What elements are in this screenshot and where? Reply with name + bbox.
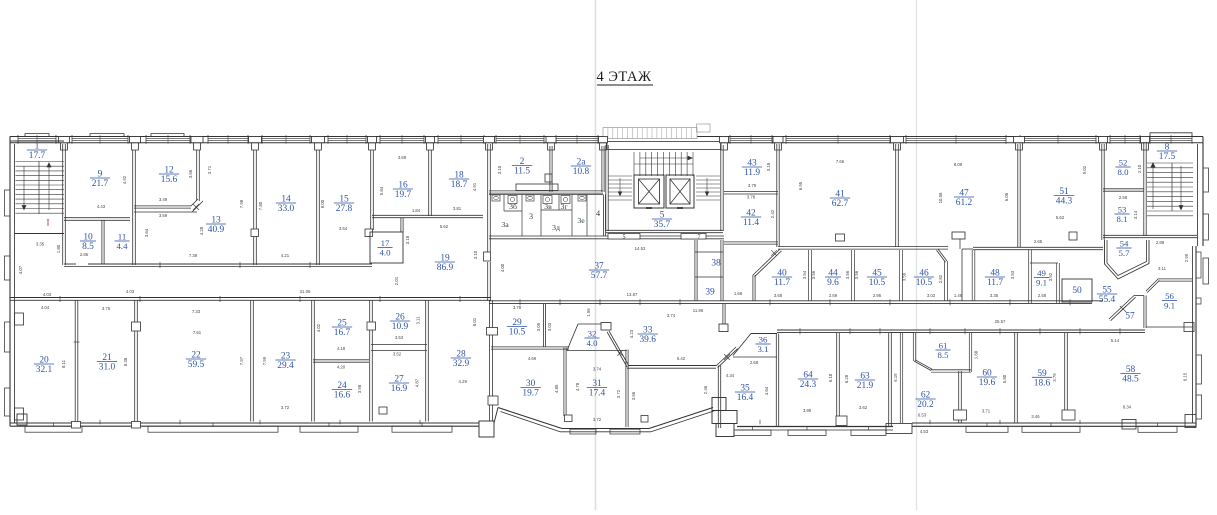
svg-text:5.84: 5.84 (379, 186, 384, 195)
svg-text:3.03: 3.03 (547, 322, 552, 331)
svg-text:55.4: 55.4 (1099, 295, 1116, 305)
svg-text:11.5: 11.5 (514, 167, 530, 177)
svg-text:3.98: 3.98 (357, 384, 362, 393)
svg-text:3.11: 3.11 (416, 316, 421, 325)
svg-text:5.80: 5.80 (1002, 374, 1007, 383)
svg-text:3.46: 3.46 (1031, 414, 1040, 419)
svg-text:59.5: 59.5 (188, 360, 205, 370)
svg-text:3.72: 3.72 (593, 417, 602, 422)
svg-text:7.97: 7.97 (239, 356, 244, 365)
svg-text:38: 38 (711, 259, 721, 269)
svg-text:3.62: 3.62 (859, 405, 868, 410)
svg-text:9.1: 9.1 (1036, 278, 1047, 288)
svg-text:6.18: 6.18 (828, 373, 833, 382)
svg-text:3.54: 3.54 (339, 226, 348, 231)
svg-text:4.28: 4.28 (199, 226, 204, 235)
svg-text:3д: 3д (552, 223, 560, 232)
svg-text:15.6: 15.6 (161, 175, 178, 185)
svg-text:3.56: 3.56 (811, 270, 816, 279)
svg-text:3.78: 3.78 (747, 195, 756, 200)
svg-text:39.6: 39.6 (639, 335, 656, 345)
svg-text:2.99: 2.99 (1184, 253, 1189, 262)
svg-text:2.65: 2.65 (1034, 239, 1043, 244)
svg-text:4: 4 (596, 209, 600, 218)
svg-text:6.06: 6.06 (1004, 192, 1009, 201)
svg-text:31.06: 31.06 (300, 289, 311, 294)
svg-text:44.3: 44.3 (1056, 197, 1073, 207)
svg-text:4.07: 4.07 (18, 265, 23, 274)
svg-text:1.68: 1.68 (734, 291, 743, 296)
svg-text:6.19: 6.19 (893, 373, 898, 382)
svg-text:5.62: 5.62 (440, 224, 449, 229)
svg-text:18.6: 18.6 (1034, 379, 1051, 389)
svg-text:4.04: 4.04 (41, 305, 50, 310)
svg-text:39: 39 (705, 288, 715, 298)
svg-text:6.42: 6.42 (677, 356, 686, 361)
svg-text:11.96: 11.96 (693, 308, 704, 313)
svg-text:1.49: 1.49 (954, 293, 963, 298)
svg-text:21.9: 21.9 (857, 381, 874, 391)
svg-text:61: 61 (939, 341, 948, 351)
svg-text:3.69: 3.69 (398, 155, 407, 160)
svg-text:3.56: 3.56 (845, 270, 850, 279)
svg-text:3.72: 3.72 (616, 389, 621, 398)
svg-text:3.49: 3.49 (159, 197, 168, 202)
svg-text:4.92: 4.92 (122, 175, 127, 184)
svg-text:8.00: 8.00 (320, 199, 325, 208)
svg-text:7.39: 7.39 (189, 253, 198, 258)
svg-text:8.5: 8.5 (82, 242, 94, 252)
svg-text:1.84: 1.84 (412, 208, 421, 213)
svg-text:3.71: 3.71 (982, 409, 991, 414)
svg-text:32.9: 32.9 (453, 359, 470, 369)
svg-text:2.58: 2.58 (1038, 293, 1047, 298)
svg-text:4.18: 4.18 (337, 346, 346, 351)
svg-text:10.5: 10.5 (509, 328, 526, 338)
svg-text:57: 57 (1125, 312, 1135, 322)
svg-text:3.79: 3.79 (748, 183, 757, 188)
svg-text:3.74: 3.74 (667, 313, 676, 318)
svg-text:3.75: 3.75 (102, 306, 111, 311)
svg-text:17.4: 17.4 (589, 389, 606, 399)
svg-text:8.34: 8.34 (1123, 405, 1132, 410)
svg-text:16.6: 16.6 (334, 391, 351, 401)
svg-text:62.7: 62.7 (832, 199, 849, 209)
svg-text:6.53: 6.53 (918, 413, 927, 418)
svg-text:2.01: 2.01 (394, 276, 399, 285)
svg-text:4.23: 4.23 (629, 329, 634, 338)
svg-text:3.02: 3.02 (927, 293, 936, 298)
svg-text:11.7: 11.7 (774, 278, 790, 288)
svg-text:2.10: 2.10 (1137, 164, 1142, 173)
svg-text:2.42: 2.42 (770, 209, 775, 218)
svg-text:7.99: 7.99 (262, 356, 267, 365)
svg-text:4.03: 4.03 (126, 289, 135, 294)
svg-text:2.46: 2.46 (703, 385, 708, 394)
svg-text:3.78: 3.78 (513, 305, 522, 310)
svg-text:32: 32 (588, 329, 597, 339)
svg-text:8.11: 8.11 (61, 359, 66, 368)
svg-text:3.35: 3.35 (36, 242, 45, 247)
svg-text:11.9: 11.9 (744, 168, 760, 178)
svg-text:4.43: 4.43 (97, 204, 106, 209)
svg-text:4.21: 4.21 (281, 253, 290, 258)
svg-text:3.72: 3.72 (281, 405, 290, 410)
svg-text:10.8: 10.8 (573, 167, 590, 177)
svg-text:54: 54 (1120, 239, 1129, 249)
svg-text:2.89: 2.89 (1156, 240, 1165, 245)
svg-text:33.0: 33.0 (278, 204, 295, 214)
svg-text:4.64: 4.64 (764, 386, 769, 395)
svg-text:16.9: 16.9 (391, 384, 408, 394)
svg-text:7: 7 (698, 235, 701, 241)
svg-text:4.03: 4.03 (43, 292, 52, 297)
svg-text:27.8: 27.8 (336, 204, 353, 214)
svg-text:8.01: 8.01 (472, 317, 477, 326)
svg-text:31.0: 31.0 (99, 363, 116, 373)
svg-text:3в: 3в (544, 202, 552, 211)
svg-text:4 ЭТАЖ: 4 ЭТАЖ (596, 69, 651, 85)
svg-text:11.7: 11.7 (987, 278, 1003, 288)
svg-text:2.58: 2.58 (1119, 195, 1128, 200)
svg-text:16.4: 16.4 (737, 393, 754, 403)
svg-text:3.14: 3.14 (1133, 210, 1138, 219)
svg-text:2.82: 2.82 (938, 274, 943, 283)
svg-text:3.64: 3.64 (144, 228, 149, 237)
svg-text:17.7: 17.7 (29, 151, 46, 161)
svg-text:29.4: 29.4 (277, 361, 294, 371)
svg-text:17: 17 (381, 238, 390, 248)
svg-text:8.1: 8.1 (1117, 214, 1128, 224)
svg-text:40.9: 40.9 (208, 225, 225, 235)
svg-text:10.58: 10.58 (938, 192, 943, 203)
svg-text:3.52: 3.52 (1048, 272, 1053, 281)
svg-text:53: 53 (1118, 205, 1127, 215)
svg-text:3.66: 3.66 (188, 169, 193, 178)
svg-text:4.87: 4.87 (415, 378, 420, 387)
svg-text:8.0: 8.0 (1118, 167, 1130, 177)
svg-text:19.7: 19.7 (395, 190, 412, 200)
svg-text:3.66: 3.66 (631, 391, 636, 400)
svg-text:3.68: 3.68 (774, 293, 783, 298)
svg-text:86.9: 86.9 (437, 263, 454, 273)
svg-text:21.7: 21.7 (92, 179, 109, 189)
svg-text:4.91: 4.91 (472, 182, 477, 191)
svg-text:3.1: 3.1 (758, 344, 769, 354)
svg-text:20.2: 20.2 (917, 400, 934, 410)
svg-text:3а: 3а (501, 220, 509, 229)
svg-text:57.7: 57.7 (591, 271, 608, 281)
svg-text:11: 11 (118, 232, 126, 242)
svg-text:3.10: 3.10 (497, 165, 502, 174)
svg-text:6.28: 6.28 (844, 374, 849, 383)
svg-text:10.9: 10.9 (392, 322, 409, 332)
svg-text:6.95: 6.95 (798, 181, 803, 190)
svg-text:3.05: 3.05 (536, 322, 541, 331)
svg-text:3.79: 3.79 (1052, 373, 1057, 382)
svg-text:49: 49 (1037, 268, 1046, 278)
svg-text:1.80: 1.80 (56, 244, 61, 253)
svg-text:14.53: 14.53 (635, 246, 646, 251)
svg-text:4.00: 4.00 (500, 263, 505, 272)
svg-text:9.1: 9.1 (1164, 301, 1175, 311)
svg-text:19.7: 19.7 (522, 389, 539, 399)
svg-text:16.7: 16.7 (334, 328, 351, 338)
svg-text:3е: 3е (577, 216, 585, 225)
svg-text:7.80: 7.80 (258, 201, 263, 210)
svg-text:3.59: 3.59 (159, 213, 168, 218)
svg-text:4.34: 4.34 (726, 373, 735, 378)
svg-text:8.38: 8.38 (123, 357, 128, 366)
svg-text:36: 36 (759, 335, 768, 345)
svg-text:3.54: 3.54 (802, 270, 807, 279)
svg-text:4.0: 4.0 (380, 248, 392, 258)
svg-text:11.4: 11.4 (743, 218, 759, 228)
svg-text:48.5: 48.5 (1122, 375, 1139, 385)
svg-text:32.1: 32.1 (36, 365, 53, 375)
svg-text:17.5: 17.5 (1159, 152, 1176, 162)
svg-text:3.52: 3.52 (393, 352, 402, 357)
svg-text:3.56: 3.56 (902, 272, 907, 281)
svg-text:4.78: 4.78 (575, 382, 580, 391)
svg-text:3.74: 3.74 (593, 367, 602, 372)
svg-text:2.68: 2.68 (750, 360, 759, 365)
svg-text:4.69: 4.69 (528, 356, 537, 361)
svg-text:3б: 3б (509, 202, 517, 211)
svg-text:4.4: 4.4 (117, 241, 129, 251)
svg-text:10.5: 10.5 (869, 278, 886, 288)
svg-text:5.14: 5.14 (1111, 338, 1120, 343)
svg-text:4.85: 4.85 (554, 384, 559, 393)
svg-text:4.53: 4.53 (920, 429, 929, 434)
svg-text:24.3: 24.3 (800, 380, 817, 390)
svg-text:35.7: 35.7 (654, 220, 671, 230)
svg-text:1.55: 1.55 (586, 308, 591, 317)
svg-text:3: 3 (529, 212, 533, 221)
svg-text:7.98: 7.98 (239, 199, 244, 208)
svg-text:5: 5 (623, 235, 626, 241)
svg-text:7.33: 7.33 (192, 309, 201, 314)
svg-text:3г: 3г (560, 202, 567, 211)
svg-text:3.81: 3.81 (453, 206, 462, 211)
svg-text:3.53: 3.53 (395, 335, 404, 340)
svg-text:19.6: 19.6 (979, 378, 996, 388)
svg-text:2.95: 2.95 (873, 293, 882, 298)
svg-text:9.02: 9.02 (1082, 165, 1087, 174)
svg-text:7.61: 7.61 (193, 330, 202, 335)
svg-text:6.15: 6.15 (1183, 372, 1188, 381)
svg-text:2.86: 2.86 (80, 252, 89, 257)
svg-text:25.57: 25.57 (995, 319, 1006, 324)
svg-text:13.87: 13.87 (627, 292, 638, 297)
svg-text:3.18: 3.18 (405, 235, 410, 244)
svg-text:3.18: 3.18 (766, 162, 771, 171)
svg-text:52: 52 (1119, 158, 1128, 168)
svg-text:3.53: 3.53 (1010, 270, 1015, 279)
svg-text:4.20: 4.20 (337, 365, 346, 370)
svg-text:5.62: 5.62 (1056, 215, 1065, 220)
svg-text:3.11: 3.11 (1158, 266, 1167, 271)
svg-text:4.0: 4.0 (587, 338, 599, 348)
svg-text:61.2: 61.2 (956, 198, 973, 208)
svg-text:3.10: 3.10 (473, 250, 478, 259)
svg-text:50: 50 (1072, 286, 1082, 296)
svg-text:7.66: 7.66 (836, 159, 845, 164)
svg-text:3.71: 3.71 (207, 165, 212, 174)
svg-text:8.09: 8.09 (954, 162, 963, 167)
svg-text:3.35: 3.35 (990, 293, 999, 298)
svg-text:18.7: 18.7 (451, 180, 468, 190)
svg-text:3.98: 3.98 (803, 408, 812, 413)
svg-text:4.29: 4.29 (459, 379, 468, 384)
svg-text:56: 56 (1165, 291, 1174, 301)
svg-text:1.68: 1.68 (974, 350, 979, 359)
svg-text:10.5: 10.5 (916, 278, 933, 288)
svg-text:4.02: 4.02 (316, 323, 321, 332)
svg-text:9.6: 9.6 (827, 278, 839, 288)
svg-text:I: I (47, 218, 50, 228)
svg-text:8.5: 8.5 (938, 350, 950, 360)
svg-text:5.7: 5.7 (1119, 248, 1131, 258)
svg-text:2.69: 2.69 (829, 293, 838, 298)
svg-text:3.56: 3.56 (854, 270, 859, 279)
